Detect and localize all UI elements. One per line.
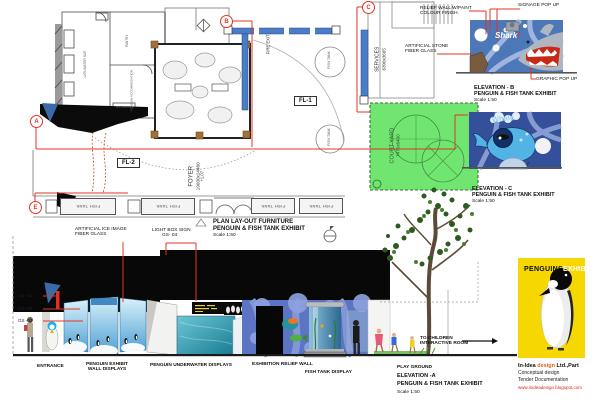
credits-firm-pre: In-Idea [518, 363, 537, 369]
courtyard-dimensions: 7470x6400 [396, 123, 401, 169]
elevation-a-subtitle: PENGUIN & FISH TANK EXHIBIT [397, 381, 483, 387]
caption-underwater-displays: PENGUIN UNDERWATER DISPLAYS [150, 363, 232, 368]
services-dimensions: 6300x3665 [381, 37, 386, 81]
foyer-label: FOYER 19000x24460 +1.07 [189, 150, 206, 202]
elevation-a-scale: Scale 1:50 [397, 390, 420, 395]
fish-tank-box-3: FISH TANK [251, 198, 295, 214]
credits-line3: Tender Documentation [518, 378, 568, 384]
artificial-stone-line2: FIBER GLASS [405, 49, 448, 54]
services-label: SERVICES 6300x3665 [376, 37, 387, 81]
fish-tank-box-4-label: FISH TANK [309, 204, 333, 209]
ice-label-line2: FIBER GLASS [75, 232, 127, 237]
elevation-b-subtitle: PENGUIN & FISH TANK EXHIBIT [474, 91, 557, 97]
plan-caption-line1: PLAN LAY-OUT FURNITURE [213, 219, 305, 226]
section-marker-a: A [30, 115, 43, 128]
credits-line2: Conceptual design [518, 371, 559, 377]
shark-word: Shark [495, 31, 517, 40]
marker-b-label: B [224, 19, 228, 25]
fish-tank-box-4: FISH TANK [299, 198, 343, 214]
plan-caption-line2: PENGUIN & FISH TANK EXHIBIT [213, 226, 305, 233]
floor-label-fl1: FL-1 [294, 96, 317, 106]
section-marker-c: C [362, 1, 375, 14]
fish-tank-box-1-label: FISH TANK [76, 204, 100, 209]
credits-firm-post: Ltd.,Part [555, 363, 579, 369]
elevation-c-caption: ELEVATION - C PENGUIN & FISH TANK EXHIBI… [472, 186, 555, 205]
elevation-c-scale: Scale 1:50 [472, 199, 555, 204]
caption-playground: PLAY GROUND [397, 365, 432, 370]
room-label-pantry: PANTRY [126, 29, 130, 53]
children-line2: INTERACTIVE ROOM [420, 341, 468, 346]
plan-caption-scale: Scale 1:50 [213, 233, 305, 238]
elevation-c-subtitle: PENGUIN & FISH TANK EXHIBIT [472, 192, 555, 198]
gs-03-label: GS -03 [18, 318, 32, 323]
section-marker-b: B [220, 15, 233, 28]
gs-01-label: GS -01 [18, 293, 32, 298]
credits-website: www.inideadesign.blogspot.com [518, 385, 582, 390]
caption-wall-displays: PENGUIN EXHIBIT WALL DISPLAYS [86, 362, 128, 373]
poster-title: PENGUINSEXHIBIT [524, 266, 593, 274]
elevation-b-scale: Scale 1:50 [474, 98, 557, 103]
elevation-b-illustration [456, 20, 577, 74]
fish-tank-box-1: FISH TANK [60, 198, 116, 215]
credits-firm-accent: design [537, 363, 555, 369]
lightbox-annotation: LIGHT BOX SIGN GS- 04 [152, 228, 191, 239]
room-label-water-pool: WATER POOL [114, 106, 136, 109]
design-sheet: A B C E FL-1 FL-2 FIRE EXIT SERVICES 630… [0, 0, 600, 400]
relief-wall-line2: COLOUR FINISH. [420, 11, 472, 16]
fish-tank-box-2-label: FISH TANK [156, 204, 180, 209]
site-tree [383, 188, 475, 355]
room-label-locker: LKR./WATER SUP. [84, 44, 88, 84]
relief-wall-annotation: RELIEF WALL W/PAINT COLOUR FINISH. [420, 6, 472, 17]
marker-a-label: A [34, 119, 38, 125]
foyer-level: +1.07 [201, 150, 206, 202]
caption-wall-line2: WALL DISPLAYS [86, 367, 128, 372]
shark-exclamation: ! [517, 31, 520, 40]
to-children-label: TO CHILDREN INTERACTIVE ROOM [420, 336, 468, 347]
marker-e-label: E [33, 205, 37, 211]
credits-firm: In-Idea design Ltd.,Part [518, 363, 579, 369]
foyer-name: FOYER [189, 150, 196, 202]
lightbox-line2: GS- 04 [152, 233, 191, 238]
caption-fish-tank-display: FISH TANK DISPLAY [305, 370, 352, 375]
gs-02-label: GS -02 [18, 306, 32, 311]
shark-art-text: Shark! [495, 32, 520, 41]
plan-courtyard [370, 103, 478, 190]
courtyard-label: COURT YARD 7470x6400 [389, 123, 400, 169]
fish-tank-circle-label-1: FISH TANK [328, 45, 332, 75]
signage-annotation: SIGNAGE POP UP [518, 3, 559, 8]
artificial-ice-annotation: ARTIFICIAL ICE IMAGE FIBER GLASS [75, 227, 127, 238]
poster-title-exhibit: EXHIBIT [563, 266, 593, 273]
fire-exit-label: FIRE EXIT [267, 28, 272, 60]
graphic-popup-annotation: GRAPHIC POP UP [536, 77, 577, 82]
caption-relief-wall: EXHIBITION RELIEF WALL [252, 362, 313, 367]
artificial-stone-annotation: ARTIFICIAL STONE FIBER GLASS [405, 44, 448, 55]
caption-entrance: ENTRANCE [37, 364, 64, 369]
floor-label-fl2: FL-2 [117, 158, 140, 168]
section-marker-e: E [29, 201, 42, 214]
fish-tank-box-3-label: FISH TANK [261, 204, 285, 209]
elevation-b-caption: ELEVATION - B PENGUIN & FISH TANK EXHIBI… [474, 85, 557, 104]
elevation-a-title: ELEVATION -A [397, 373, 436, 379]
plan-caption: PLAN LAY-OUT FURNITURE PENGUIN & FISH TA… [213, 219, 305, 239]
plan-penguin-pool-room [151, 41, 250, 139]
fish-tank-circle-label-2: FISH TANK [328, 122, 332, 152]
marker-c-label: C [366, 5, 370, 11]
poster-title-penguins: PENGUINS [524, 266, 563, 273]
fish-tank-box-2: FISH TANK [141, 198, 195, 215]
